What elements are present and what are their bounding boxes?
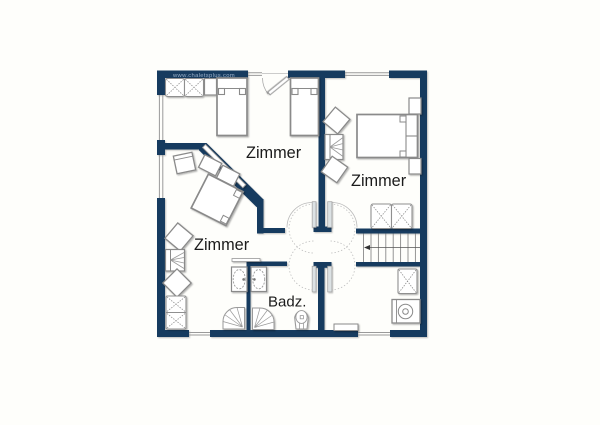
svg-text:Badz.: Badz. [268,294,306,311]
svg-text:Zimmer: Zimmer [246,144,302,162]
svg-text:Zimmer: Zimmer [351,172,407,190]
svg-text:Zimmer: Zimmer [194,236,250,254]
svg-text:www.chaletsplus.com: www.chaletsplus.com [172,73,235,79]
